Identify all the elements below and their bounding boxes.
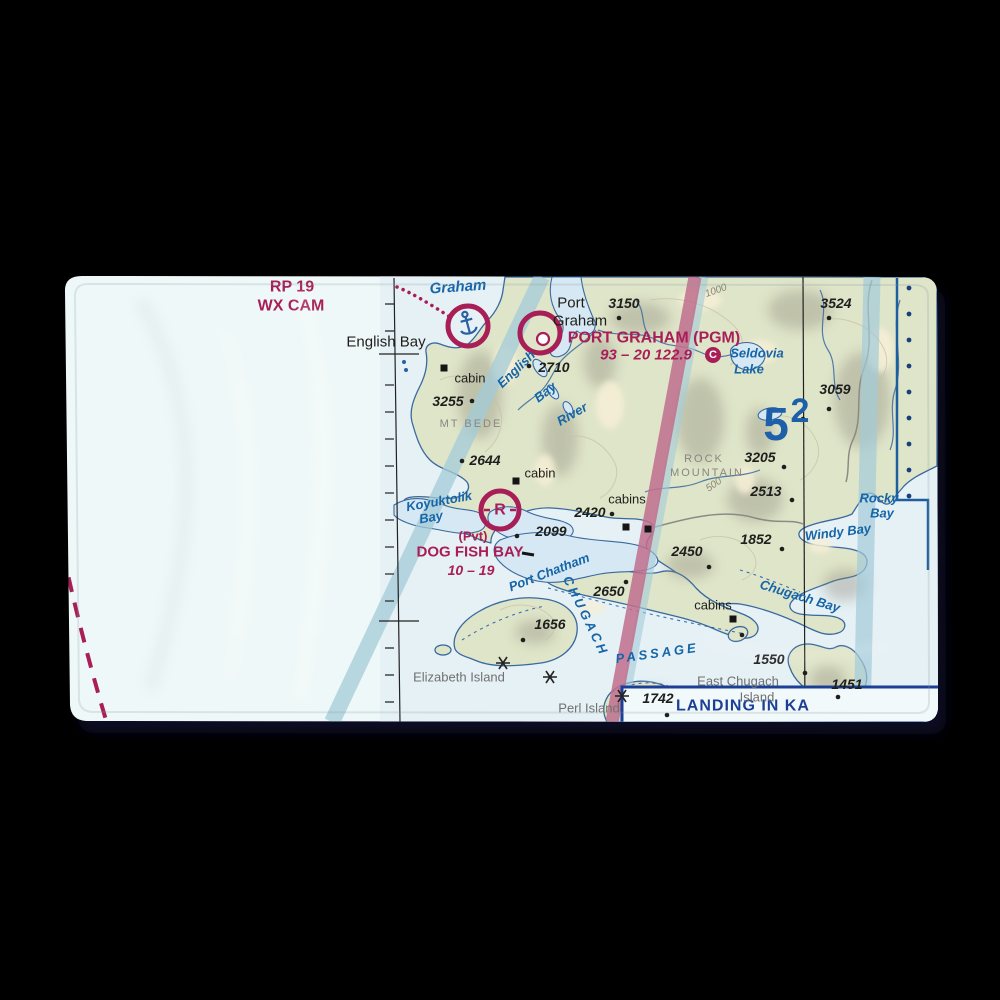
map-label: 93 – 20 122.9	[600, 347, 692, 364]
map-label: (Pvt)	[459, 529, 488, 544]
map-label: Lake	[734, 362, 764, 377]
spot-elevation-dot	[803, 671, 808, 676]
cabin-square	[645, 526, 652, 533]
boundary-dot	[907, 468, 912, 473]
map-label: cabin	[454, 371, 485, 386]
map-label: 2099	[534, 523, 566, 539]
map-label: Island	[740, 690, 775, 705]
spot-elevation-dot	[610, 512, 615, 517]
map-label: 3150	[608, 295, 639, 311]
spot-elevation-dot	[827, 316, 832, 321]
map-label: DOG FISH BAY	[417, 544, 524, 561]
map-label: 2420	[573, 504, 605, 520]
dog-fish-runway-tick	[522, 553, 534, 555]
dog-fish-R-symbol: R	[494, 502, 506, 519]
spot-elevation-dot	[515, 534, 520, 539]
boundary-dot	[907, 442, 912, 447]
map-label: 2	[791, 392, 810, 430]
boundary-dot	[907, 416, 912, 421]
map-label: cabins	[694, 598, 732, 613]
spot-elevation-dot	[617, 316, 622, 321]
map-label: 2450	[670, 543, 702, 559]
map-label: C	[709, 349, 717, 361]
spot-elevation-dot	[836, 695, 841, 700]
map-label: 1656	[534, 616, 565, 632]
map-label: cabins	[608, 492, 646, 507]
cabin-square	[730, 616, 737, 623]
cabin-square	[441, 365, 448, 372]
map-label: 3524	[820, 295, 851, 311]
boundary-dot	[907, 494, 912, 499]
spot-elevation-dot	[790, 498, 795, 503]
map-label: PORT GRAHAM (PGM)	[568, 330, 740, 347]
map-label: Bay	[870, 506, 895, 521]
map-label: 2710	[537, 359, 569, 375]
map-label: MOUNTAIN	[670, 467, 744, 479]
cabin-square	[623, 524, 630, 531]
product-photo-stage: R LANDING IN KA RP 19WX CAMEnglish BayGr…	[0, 0, 1000, 1000]
map-label: 3205	[744, 449, 775, 465]
map-label: East Chugach	[697, 674, 779, 689]
spot-elevation-dot	[460, 459, 465, 464]
map-label: 2650	[592, 583, 624, 599]
map-label: RP 19	[270, 279, 314, 296]
map-label: 3059	[819, 381, 850, 397]
spot-elevation-dot	[780, 547, 785, 552]
boundary-dot	[907, 312, 912, 317]
elizabeth-islet	[435, 645, 451, 655]
map-label: MT BEDE	[440, 418, 503, 430]
map-label: Graham	[553, 313, 607, 330]
sectional-chart-towel: R LANDING IN KA RP 19WX CAMEnglish BayGr…	[0, 0, 1000, 1000]
boundary-dot	[907, 338, 912, 343]
spot-elevation-dot	[740, 633, 745, 638]
spot-elevation-dot	[521, 638, 526, 643]
map-label: Port	[557, 295, 585, 312]
boundary-dot	[907, 390, 912, 395]
spot-elevation-dot	[827, 407, 832, 412]
cabin-square	[513, 478, 520, 485]
map-label: 1742	[642, 690, 673, 706]
port-graham-airport-symbol	[537, 333, 549, 345]
map-label: 3255	[432, 393, 463, 409]
map-label: Elizabeth Island	[413, 670, 505, 685]
map-label: Rocky	[859, 491, 899, 506]
boundary-dot	[907, 364, 912, 369]
spot-elevation-dot	[470, 399, 475, 404]
spot-elevation-dot	[782, 465, 787, 470]
map-label: cabin	[524, 466, 555, 481]
boundary-dot	[907, 286, 912, 291]
marine-rock-dot	[404, 368, 408, 372]
map-label: 2644	[468, 452, 500, 468]
map-label: Seldovia	[730, 346, 783, 361]
map-label: English Bay	[346, 334, 426, 351]
map-label: 5	[763, 398, 789, 450]
map-label: 2513	[749, 483, 781, 499]
spot-elevation-dot	[707, 565, 712, 570]
map-label: 1852	[740, 531, 771, 547]
marine-rock-dot	[402, 360, 406, 364]
map-label: 1451	[831, 676, 862, 692]
map-label: 10 – 19	[448, 562, 495, 578]
map-label: ROCK	[684, 453, 724, 465]
map-label: WX CAM	[258, 298, 325, 315]
